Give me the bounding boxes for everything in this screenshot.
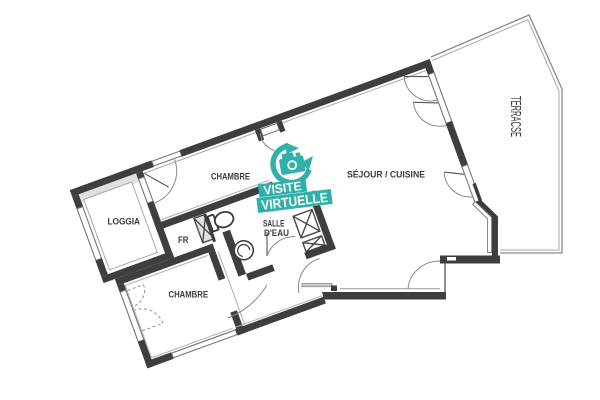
svg-text:SALLE: SALLE (263, 219, 285, 229)
svg-text:D'EAU: D'EAU (264, 228, 289, 238)
svg-text:SÉJOUR / CUISINE: SÉJOUR / CUISINE (347, 170, 425, 180)
svg-text:LOGGIA: LOGGIA (108, 217, 141, 227)
svg-text:CHAMBRE: CHAMBRE (211, 172, 250, 182)
svg-text:CHAMBRE: CHAMBRE (169, 290, 209, 300)
svg-text:FR: FR (178, 235, 189, 245)
svg-text:TERRACSE: TERRACSE (507, 96, 524, 137)
